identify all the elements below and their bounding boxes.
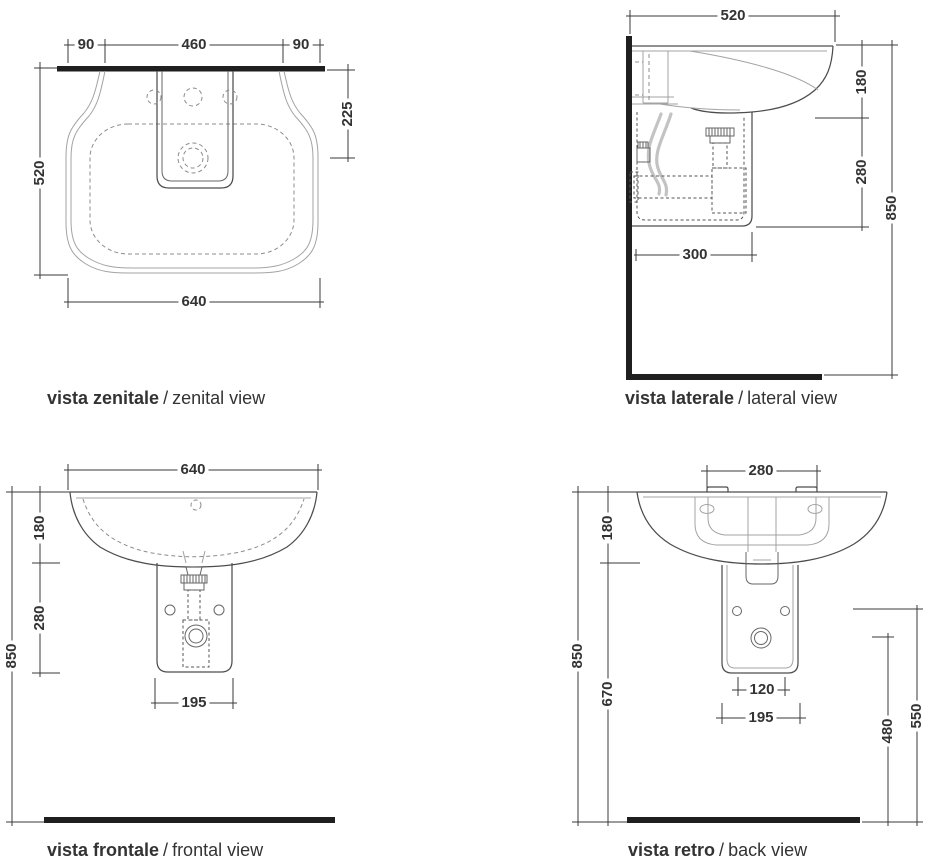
lateral-faucet-column xyxy=(643,51,668,103)
frontal-floor-bar xyxy=(44,817,335,823)
dim-retro-bowl-to-floor: 670 xyxy=(600,678,616,709)
zenital-tap-holes xyxy=(147,88,237,106)
dim-retro-drain-height: 480 xyxy=(880,715,896,746)
retro-pedestal-outline xyxy=(722,565,798,673)
dim-zenital-width: 640 xyxy=(178,294,209,310)
retro-bracket-holes xyxy=(700,505,822,514)
retro-bowl-outline xyxy=(637,492,887,564)
zenital-pedestal-inner xyxy=(162,71,228,181)
lateral-drain-trap xyxy=(630,128,746,213)
lateral-bowl-profile xyxy=(691,46,833,113)
caption-lateral-it: vista laterale xyxy=(625,388,734,408)
frontal-view-drawing xyxy=(6,464,335,826)
retro-fixing-tabs xyxy=(707,487,817,492)
caption-zenital-en: zenital view xyxy=(172,388,265,408)
frontal-bowl-outline xyxy=(70,492,317,567)
retro-floor-bar xyxy=(627,817,860,823)
dim-retro-rim-to-bowl: 180 xyxy=(600,512,616,543)
retro-drain-hole xyxy=(751,628,771,648)
retro-back-tray xyxy=(695,497,829,545)
dim-frontal-pedestal-width: 195 xyxy=(178,695,209,711)
lateral-bowl-inner-bottom xyxy=(660,104,740,110)
frontal-overflow-hole xyxy=(191,500,201,510)
zenital-wall-bar xyxy=(57,66,325,72)
lateral-bowl-inner-sweep xyxy=(690,51,818,90)
zenital-drain-hole xyxy=(178,143,208,173)
dim-retro-fixing-span: 280 xyxy=(745,463,776,479)
frontal-bowl-hidden-edge xyxy=(83,499,304,557)
retro-channel-notch xyxy=(746,552,778,584)
dim-lateral-pedestal-depth: 300 xyxy=(679,247,710,263)
retro-fixing-holes xyxy=(733,607,790,616)
caption-zenital-view: vista zenitale/zenital view xyxy=(47,388,265,409)
dim-frontal-rim-height: 850 xyxy=(4,640,20,671)
retro-back-tray-inner xyxy=(708,497,816,535)
caption-frontal-sep: / xyxy=(159,840,172,860)
retro-view-drawing xyxy=(572,465,923,826)
zenital-basin-outline xyxy=(66,71,318,273)
frontal-drain-assembly xyxy=(181,551,209,667)
zenital-basin-rim-inner xyxy=(71,71,313,268)
lateral-supply-hoses xyxy=(648,114,671,195)
dim-retro-pedestal-width: 195 xyxy=(745,710,776,726)
dim-zenital-depth: 520 xyxy=(32,157,48,188)
drawing-svg xyxy=(0,0,930,866)
dim-lateral-bowl-to-pedestal: 280 xyxy=(854,156,870,187)
dim-retro-holes-height: 550 xyxy=(909,700,925,731)
dim-zenital-drain-from-wall: 225 xyxy=(340,98,356,129)
dim-lateral-rim-height: 850 xyxy=(884,192,900,223)
dim-zenital-tap-span: 460 xyxy=(178,37,209,53)
dim-zenital-offset-right: 90 xyxy=(290,37,313,53)
caption-frontal-en: frontal view xyxy=(172,840,263,860)
caption-frontal-it: vista frontale xyxy=(47,840,159,860)
dim-frontal-bowl-to-pedestal: 280 xyxy=(32,602,48,633)
zenital-view-drawing xyxy=(34,39,355,308)
technical-drawing-sheet: 90 460 90 520 225 640 520 180 280 850 30… xyxy=(0,0,930,866)
caption-zenital-it: vista zenitale xyxy=(47,388,159,408)
caption-retro-sep: / xyxy=(715,840,728,860)
retro-overflow-channel xyxy=(748,497,776,560)
dim-retro-drain-offset: 120 xyxy=(746,682,777,698)
retro-pedestal-inner xyxy=(727,565,793,668)
frontal-fixing-holes xyxy=(165,605,224,615)
caption-retro-view: vista retro/back view xyxy=(628,840,807,861)
caption-retro-it: vista retro xyxy=(628,840,715,860)
dim-lateral-depth: 520 xyxy=(717,8,748,24)
frontal-pedestal-outline xyxy=(157,563,232,672)
zenital-basin-hidden-edge xyxy=(90,124,294,254)
caption-zenital-sep: / xyxy=(159,388,172,408)
caption-frontal-view: vista frontale/frontal view xyxy=(47,840,263,861)
dim-lateral-rim-to-bowl: 180 xyxy=(854,66,870,97)
caption-lateral-sep: / xyxy=(734,388,747,408)
lateral-wall-bar xyxy=(626,36,632,380)
caption-lateral-view: vista laterale/lateral view xyxy=(625,388,837,409)
dim-frontal-rim-to-bowl: 180 xyxy=(32,512,48,543)
lateral-faucet-hidden xyxy=(635,54,649,100)
lateral-floor-bar xyxy=(626,374,822,380)
dim-frontal-width: 640 xyxy=(177,462,208,478)
frontal-dimensions xyxy=(6,464,322,826)
caption-lateral-en: lateral view xyxy=(747,388,837,408)
dim-retro-rim-height: 850 xyxy=(570,640,586,671)
dim-zenital-offset-left: 90 xyxy=(75,37,98,53)
caption-retro-en: back view xyxy=(728,840,807,860)
